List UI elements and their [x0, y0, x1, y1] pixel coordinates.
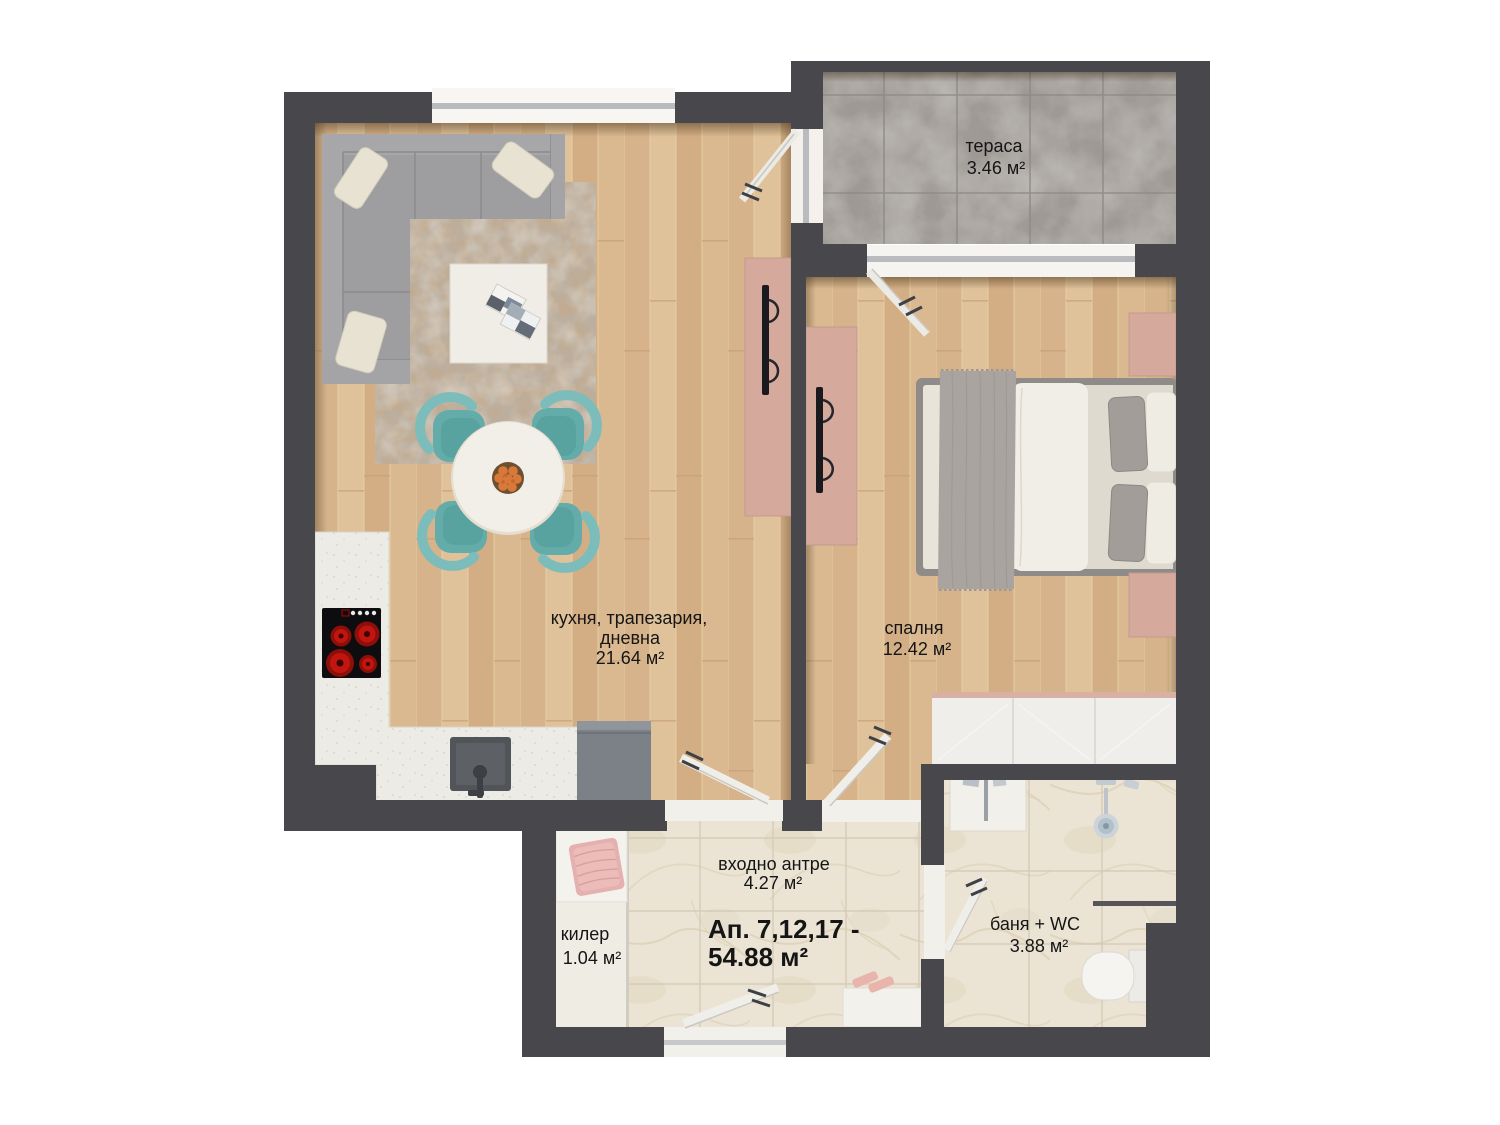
svg-text:тераса: тераса: [965, 136, 1023, 156]
svg-text:12.42 м²: 12.42 м²: [883, 639, 951, 659]
svg-text:спалня: спалня: [885, 618, 944, 638]
svg-text:входно антре: входно антре: [718, 854, 830, 874]
svg-text:кухня, трапезария,: кухня, трапезария,: [551, 608, 707, 628]
svg-text:дневна: дневна: [600, 628, 661, 648]
svg-text:1.04 м²: 1.04 м²: [563, 948, 621, 968]
svg-text:3.88 м²: 3.88 м²: [1010, 936, 1068, 956]
svg-text:4.27 м²: 4.27 м²: [744, 873, 802, 893]
svg-text:21.64 м²: 21.64 м²: [596, 648, 664, 668]
svg-text:килер: килер: [561, 924, 609, 944]
svg-text:3.46 м²: 3.46 м²: [967, 158, 1025, 178]
svg-text:Ап. 7,12,17 -: Ап. 7,12,17 -: [708, 914, 860, 944]
svg-text:баня + WC: баня + WC: [990, 914, 1080, 934]
svg-text:54.88 м²: 54.88 м²: [708, 942, 809, 972]
